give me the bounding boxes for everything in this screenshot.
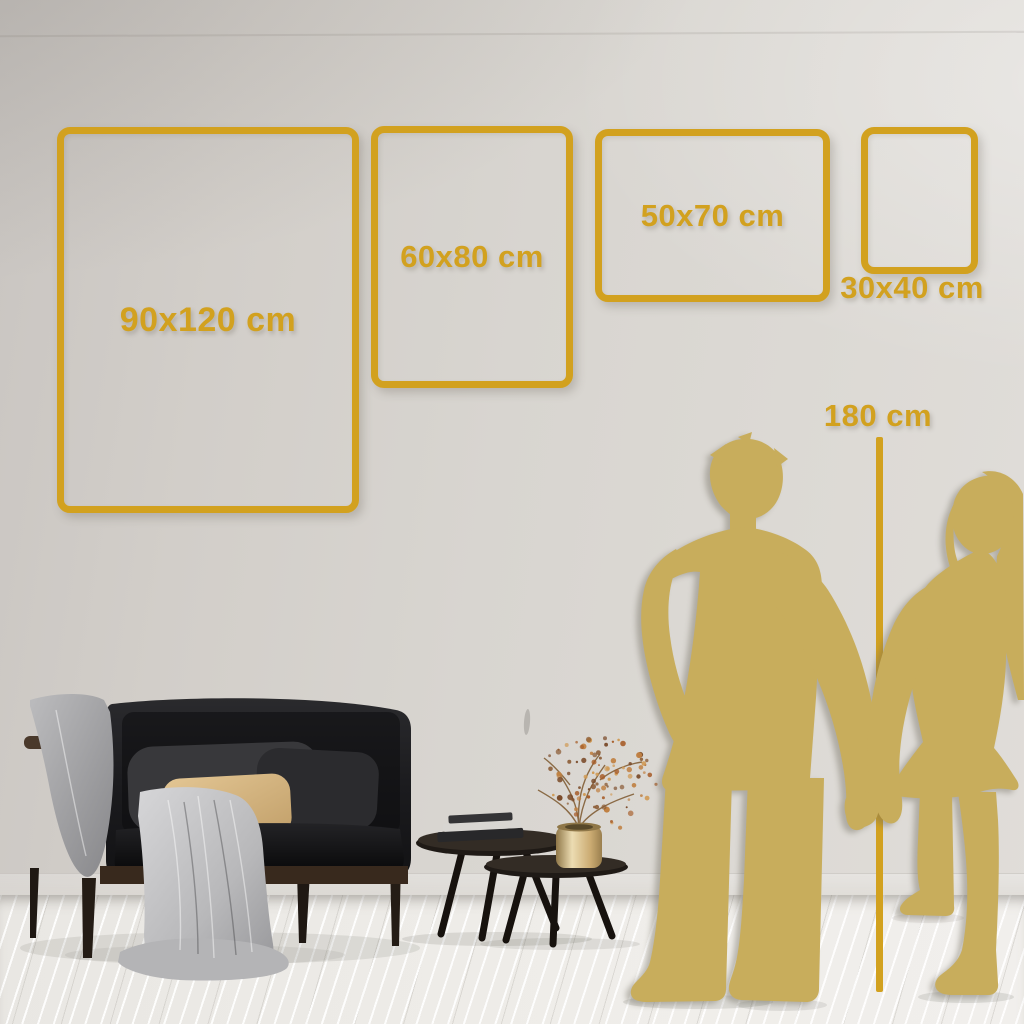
berry — [581, 758, 586, 763]
berry — [632, 783, 637, 788]
berry — [591, 784, 596, 789]
berry — [610, 793, 612, 795]
berry — [567, 760, 571, 764]
sofa-leg — [30, 868, 39, 938]
size-label-90x120: 90x120 cm — [120, 301, 297, 340]
berry — [620, 785, 625, 790]
wall-mark — [523, 709, 531, 735]
berry — [567, 803, 569, 805]
size-label-30x40: 30x40 cm — [824, 270, 1000, 306]
berry — [596, 788, 600, 792]
berry — [556, 749, 562, 755]
berry — [592, 771, 595, 774]
man-right-leg — [729, 778, 824, 1002]
berry — [628, 774, 633, 779]
berry — [614, 787, 618, 791]
berry — [604, 766, 610, 772]
berry — [592, 753, 597, 758]
couple-silhouette — [631, 432, 1024, 1002]
berry — [604, 743, 608, 747]
berry — [606, 785, 608, 787]
berry — [610, 820, 613, 823]
size-label-60x80: 60x80 cm — [400, 239, 544, 275]
man-left-leg — [631, 778, 732, 1002]
berry — [648, 773, 653, 778]
berry — [645, 796, 650, 801]
berry — [612, 764, 615, 767]
berry — [654, 783, 657, 786]
berry — [608, 778, 611, 781]
berry — [601, 786, 606, 791]
berry — [643, 771, 646, 774]
berry — [570, 798, 572, 800]
size-frame-90x120: 90x120 cm — [57, 127, 359, 513]
berry — [595, 782, 598, 785]
berry — [617, 739, 620, 742]
berry — [639, 765, 644, 770]
berry — [584, 775, 588, 779]
berry — [580, 745, 584, 749]
berry — [588, 788, 590, 790]
berry — [575, 741, 578, 744]
berry — [629, 762, 632, 765]
berry — [642, 761, 647, 766]
berry — [574, 807, 578, 811]
berry — [552, 794, 555, 797]
berry — [614, 769, 619, 774]
berry — [640, 794, 643, 797]
woman-back-leg — [900, 792, 954, 916]
berry — [578, 786, 581, 789]
berry — [586, 737, 591, 742]
size-label-50x70: 50x70 cm — [641, 198, 785, 234]
berry — [645, 759, 648, 762]
blanket-over-arm — [30, 694, 113, 877]
coffee-tables — [416, 736, 658, 944]
berry — [601, 804, 606, 809]
berry — [628, 798, 631, 801]
berry — [571, 798, 574, 801]
berry — [557, 795, 563, 801]
berry — [576, 761, 578, 763]
size-frame-30x40 — [861, 127, 978, 274]
berry — [595, 805, 599, 809]
berry — [612, 741, 614, 743]
vase — [556, 826, 602, 868]
branch-stems — [538, 754, 642, 828]
size-frame-50x70: 50x70 cm — [595, 129, 830, 302]
man-silhouette — [631, 432, 879, 1002]
berry — [587, 795, 590, 798]
woman-head — [952, 476, 1014, 554]
berry — [548, 754, 551, 757]
berry — [567, 772, 570, 775]
berry — [599, 757, 602, 760]
vase-opening — [565, 824, 593, 830]
berry — [627, 767, 632, 772]
berry — [577, 796, 581, 800]
berry — [618, 826, 622, 830]
berry — [602, 796, 605, 799]
berry — [575, 791, 580, 796]
berry — [595, 773, 598, 776]
berry — [626, 806, 628, 808]
berry — [622, 766, 625, 769]
berry — [628, 811, 634, 817]
berry — [598, 764, 600, 766]
berry — [574, 812, 578, 816]
berry — [565, 743, 569, 747]
berry — [548, 767, 553, 772]
berry — [603, 736, 607, 740]
berry — [636, 774, 640, 778]
berry — [640, 758, 643, 761]
berry — [636, 752, 642, 758]
berry — [620, 741, 626, 747]
berry — [600, 774, 606, 780]
size-guide-scene: 90x120 cm 60x80 cm 50x70 cm 30x40 cm 180… — [0, 0, 1024, 1024]
berry — [583, 793, 586, 796]
berry — [592, 760, 597, 765]
berry — [611, 758, 616, 763]
berry — [591, 779, 596, 784]
books-stack — [436, 812, 523, 842]
size-frame-60x80: 60x80 cm — [371, 126, 573, 388]
berry — [557, 777, 562, 782]
height-reference-label: 180 cm — [806, 398, 950, 434]
